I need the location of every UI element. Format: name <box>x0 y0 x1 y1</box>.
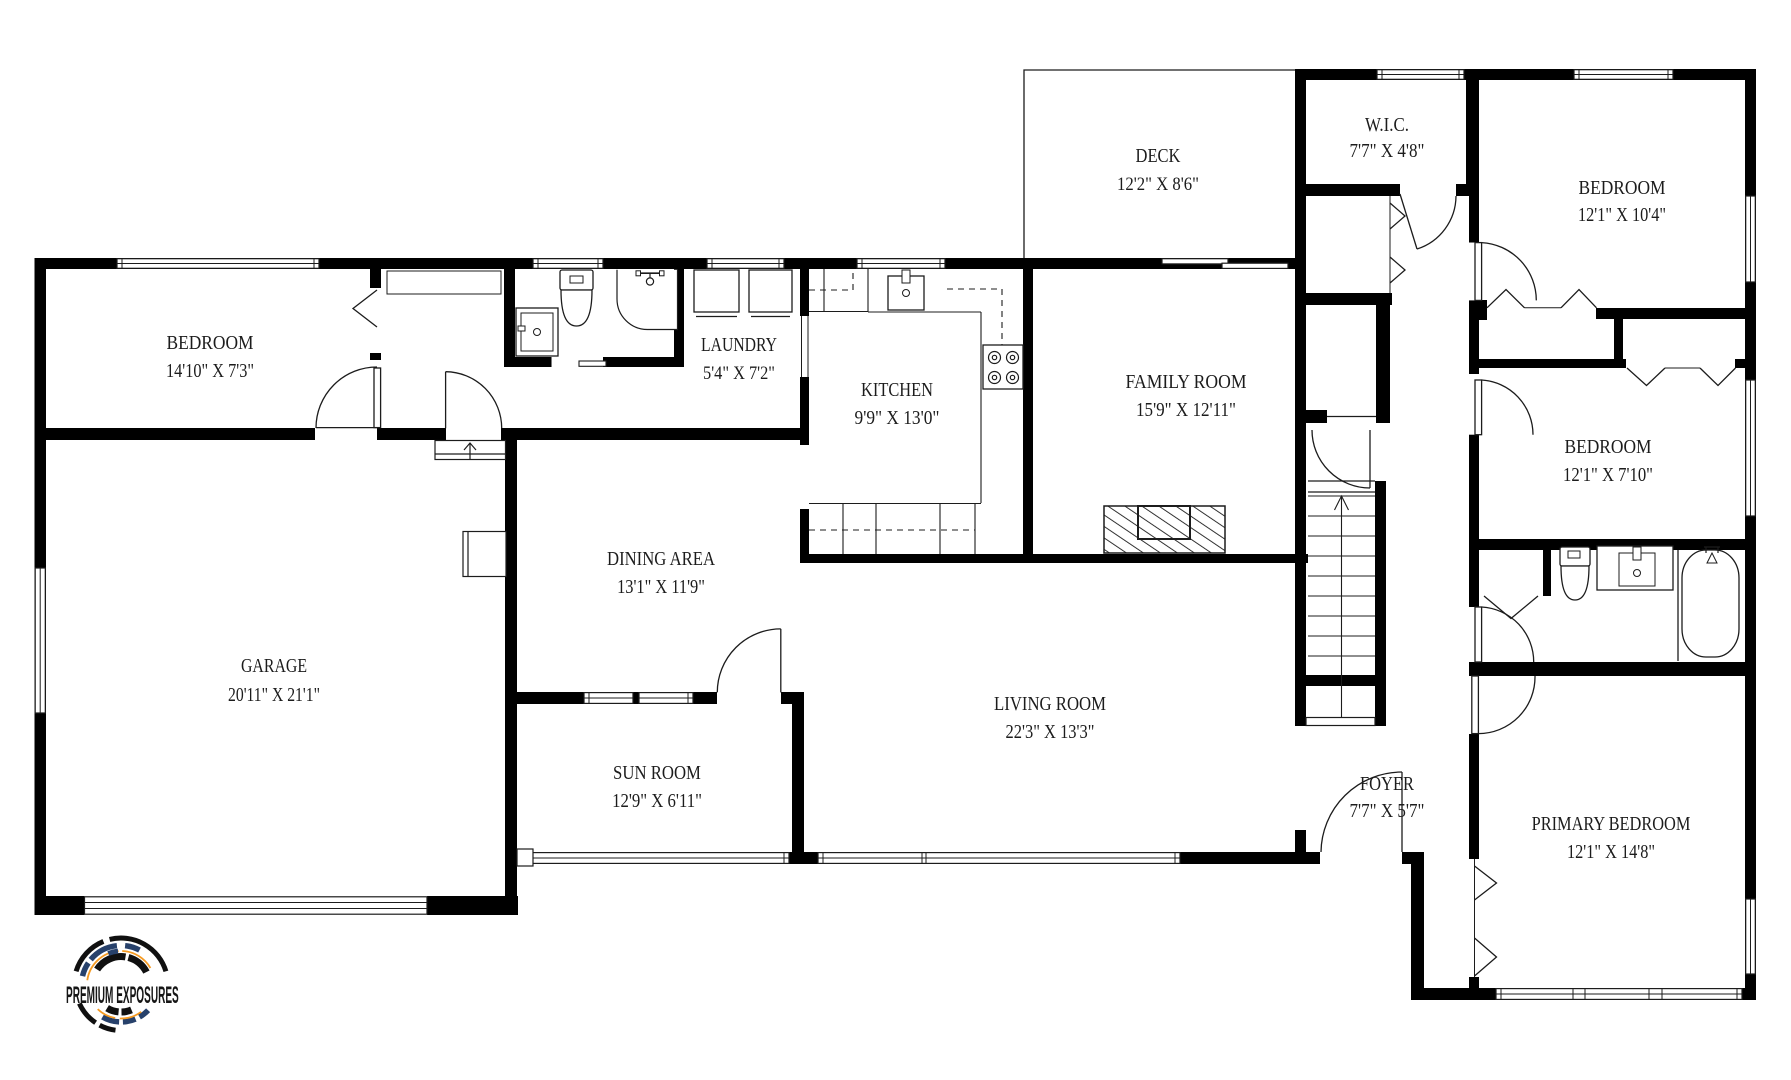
svg-text:PREMIUM EXPOSURES: PREMIUM EXPOSURES <box>66 981 179 1008</box>
svg-text:KITCHEN: KITCHEN <box>861 378 933 401</box>
svg-text:PRIMARY BEDROOM: PRIMARY BEDROOM <box>1532 812 1691 835</box>
svg-text:22'3" X 13'3": 22'3" X 13'3" <box>1006 721 1095 743</box>
svg-text:GARAGE: GARAGE <box>241 654 307 676</box>
svg-text:W.I.C.: W.I.C. <box>1365 114 1409 137</box>
svg-text:LAUNDRY: LAUNDRY <box>701 333 777 355</box>
svg-text:DINING AREA: DINING AREA <box>607 547 715 570</box>
svg-text:BEDROOM: BEDROOM <box>167 332 254 355</box>
svg-text:5'4" X 7'2": 5'4" X 7'2" <box>703 362 775 384</box>
svg-text:20'11" X 21'1": 20'11" X 21'1" <box>228 683 320 705</box>
svg-text:15'9" X 12'11": 15'9" X 12'11" <box>1136 399 1236 420</box>
svg-text:13'1" X 11'9": 13'1" X 11'9" <box>617 576 705 598</box>
svg-text:LIVING ROOM: LIVING ROOM <box>994 692 1106 715</box>
svg-text:SUN ROOM: SUN ROOM <box>613 761 701 784</box>
svg-text:BEDROOM: BEDROOM <box>1579 177 1666 200</box>
svg-text:12'2" X 8'6": 12'2" X 8'6" <box>1117 173 1199 194</box>
svg-text:9'9" X 13'0": 9'9" X 13'0" <box>855 407 940 428</box>
svg-text:7'7" X 4'8": 7'7" X 4'8" <box>1350 140 1425 161</box>
svg-text:14'10" X 7'3": 14'10" X 7'3" <box>166 360 254 382</box>
svg-text:FAMILY ROOM: FAMILY ROOM <box>1126 371 1247 394</box>
svg-text:12'9" X 6'11": 12'9" X 6'11" <box>612 790 702 811</box>
svg-text:12'1" X 10'4": 12'1" X 10'4" <box>1578 204 1666 226</box>
svg-text:FOYER: FOYER <box>1360 772 1415 795</box>
svg-text:BEDROOM: BEDROOM <box>1565 436 1652 459</box>
svg-text:12'1" X 7'10": 12'1" X 7'10" <box>1563 464 1653 485</box>
svg-text:DECK: DECK <box>1136 144 1181 167</box>
svg-text:12'1" X 14'8": 12'1" X 14'8" <box>1567 841 1655 863</box>
svg-text:7'7" X 5'7": 7'7" X 5'7" <box>1350 800 1425 821</box>
